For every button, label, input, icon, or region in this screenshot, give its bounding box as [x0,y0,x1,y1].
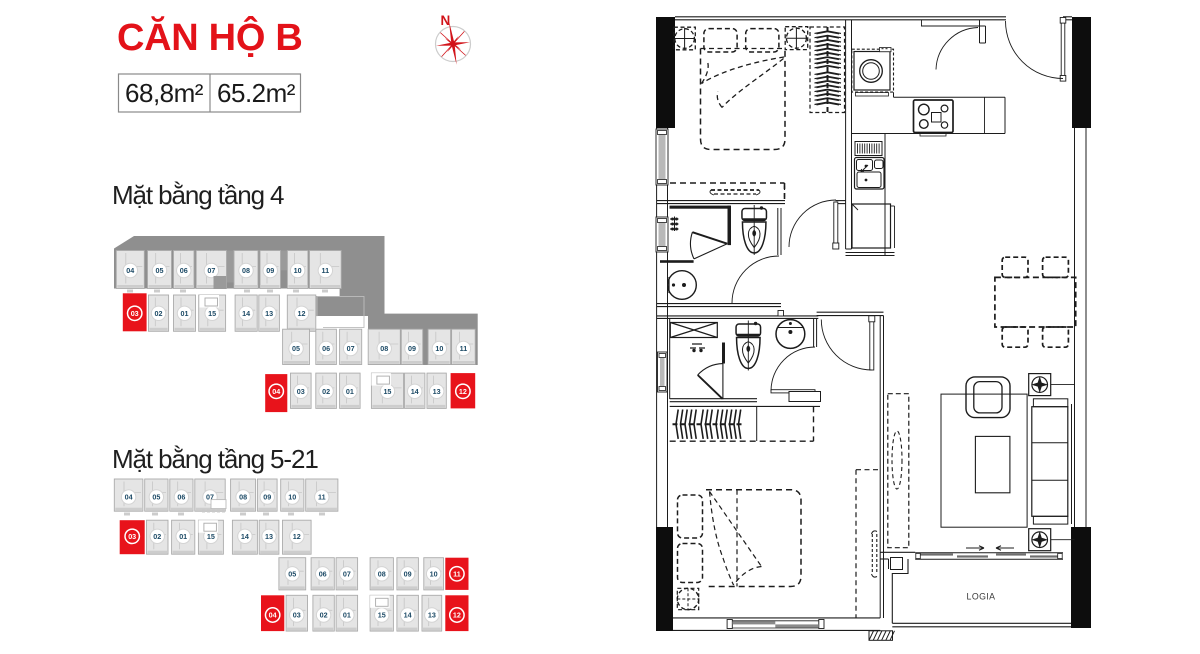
svg-text:09: 09 [266,266,274,275]
svg-text:05: 05 [288,569,296,578]
svg-text:12: 12 [298,309,306,318]
svg-text:Mặt bằng tầng 4: Mặt bằng tầng 4 [112,180,284,210]
svg-text:08: 08 [239,493,247,502]
svg-text:15: 15 [383,387,391,396]
svg-text:03: 03 [128,532,136,541]
svg-text:01: 01 [346,387,354,396]
svg-text:12: 12 [453,611,461,620]
svg-text:09: 09 [408,344,416,353]
svg-text:06: 06 [177,493,185,502]
svg-text:68,8m²: 68,8m² [125,78,204,108]
svg-text:13: 13 [428,611,436,620]
svg-text:02: 02 [155,309,163,318]
svg-text:15: 15 [378,611,386,620]
svg-text:Mặt bằng tầng 5-21: Mặt bằng tầng 5-21 [112,444,318,474]
svg-text:07: 07 [343,569,351,578]
svg-text:13: 13 [265,309,273,318]
svg-text:15: 15 [207,532,215,541]
svg-text:12: 12 [459,387,467,396]
svg-text:06: 06 [180,266,188,275]
svg-text:04: 04 [269,611,277,620]
svg-text:04: 04 [126,266,134,275]
svg-text:09: 09 [404,569,412,578]
svg-text:LOGIA: LOGIA [967,592,996,602]
svg-text:04: 04 [272,387,280,396]
svg-text:06: 06 [322,344,330,353]
svg-text:01: 01 [343,611,351,620]
svg-text:11: 11 [460,344,468,353]
svg-text:13: 13 [433,387,441,396]
svg-text:07: 07 [347,344,355,353]
svg-text:14: 14 [411,387,419,396]
svg-text:12: 12 [293,532,301,541]
svg-text:08: 08 [380,344,388,353]
svg-text:08: 08 [242,266,250,275]
svg-text:14: 14 [241,532,249,541]
svg-text:11: 11 [318,493,326,502]
svg-text:05: 05 [156,266,164,275]
svg-text:04: 04 [125,493,133,502]
svg-text:15: 15 [208,309,216,318]
svg-text:10: 10 [294,266,302,275]
svg-text:06: 06 [319,569,327,578]
svg-text:01: 01 [181,309,189,318]
svg-text:09: 09 [263,493,271,502]
svg-text:07: 07 [207,266,215,275]
svg-text:02: 02 [322,387,330,396]
svg-text:02: 02 [153,532,161,541]
svg-text:03: 03 [293,611,301,620]
svg-text:03: 03 [297,387,305,396]
svg-text:14: 14 [242,309,250,318]
svg-text:03: 03 [131,309,139,318]
svg-text:10: 10 [430,569,438,578]
svg-text:10: 10 [435,344,443,353]
svg-text:08: 08 [378,569,386,578]
svg-text:05: 05 [152,493,160,502]
svg-text:01: 01 [179,532,187,541]
svg-text:11: 11 [453,569,461,578]
svg-text:05: 05 [292,344,300,353]
svg-text:14: 14 [404,611,412,620]
svg-text:02: 02 [320,611,328,620]
svg-text:N: N [441,13,451,28]
svg-text:65.2m²: 65.2m² [217,78,296,108]
svg-text:CĂN HỘ B: CĂN HỘ B [117,14,303,59]
svg-text:13: 13 [265,532,273,541]
svg-text:11: 11 [322,266,330,275]
svg-text:10: 10 [288,493,296,502]
